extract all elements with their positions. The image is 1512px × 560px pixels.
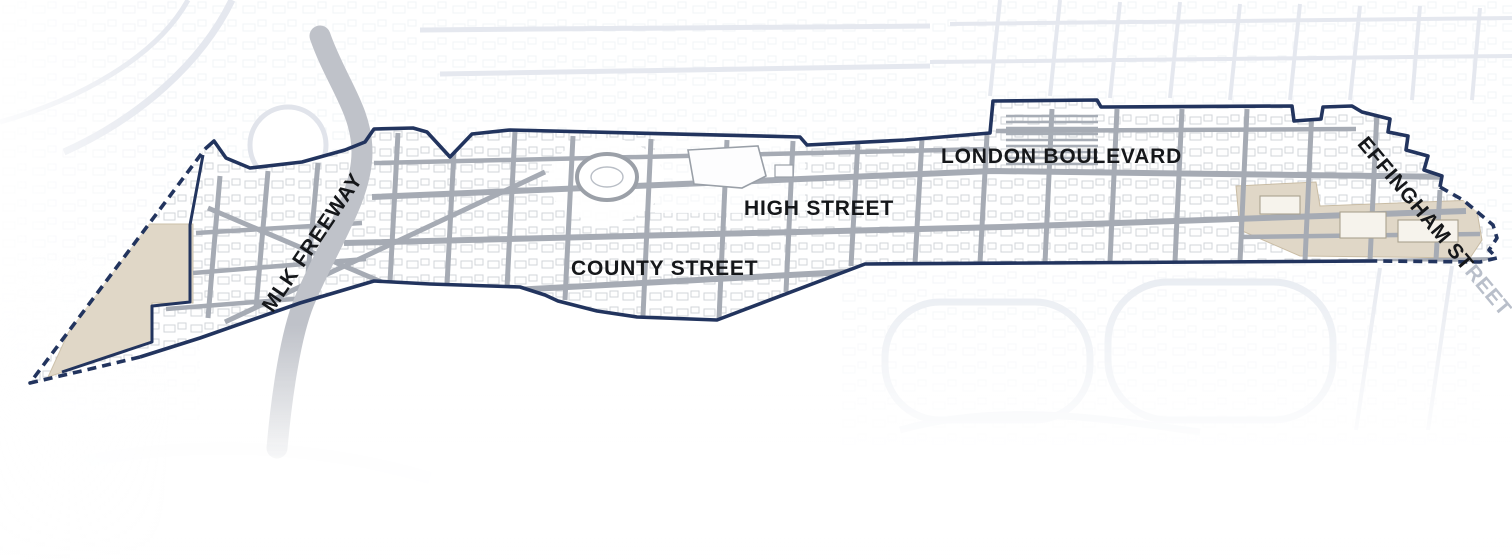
- running-track: [577, 154, 637, 200]
- small-building: [775, 165, 793, 177]
- label-london-boulevard: LONDON BOULEVARD: [941, 145, 1182, 169]
- label-high-street: HIGH STREET: [744, 197, 894, 221]
- large-building: [688, 146, 766, 188]
- label-county-street: COUNTY STREET: [571, 257, 758, 281]
- map-canvas: COUNTY STREET HIGH STREET LONDON BOULEVA…: [0, 0, 1512, 560]
